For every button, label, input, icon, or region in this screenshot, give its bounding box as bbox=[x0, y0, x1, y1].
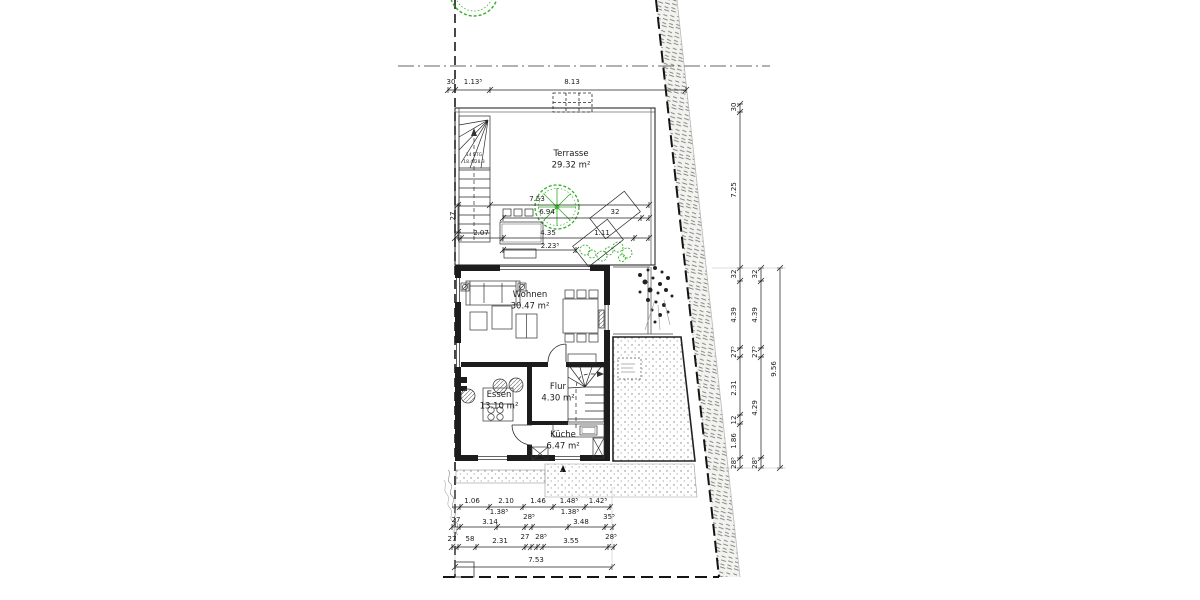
dimension-label: 9.56 bbox=[770, 361, 778, 377]
dimension-label: 27 bbox=[452, 516, 461, 524]
dimension-label: 27 bbox=[449, 212, 457, 221]
dimension-label: 4.39 bbox=[751, 307, 759, 323]
dimension-label: 1.38⁵ bbox=[490, 508, 509, 516]
room-area-wohnen: 30.47 m² bbox=[511, 302, 550, 312]
armchair bbox=[470, 312, 487, 330]
room-name-essen: Essen bbox=[487, 390, 512, 400]
table bbox=[500, 222, 543, 244]
stair-label: 14 STG bbox=[466, 152, 483, 158]
dimension-label: 7.53 bbox=[529, 195, 545, 203]
chair bbox=[577, 290, 586, 298]
dimension-label: 12 bbox=[730, 416, 738, 425]
floor-plan-drawing: 301.13⁵8.137.536.94322.074.351.112.23⁵27… bbox=[0, 0, 1200, 600]
dimension-label: 1.11 bbox=[594, 229, 610, 237]
dimension-label: 2.23⁵ bbox=[541, 242, 560, 250]
dining-table bbox=[563, 299, 598, 333]
shrub-planting bbox=[638, 266, 674, 330]
dimension-label: 4.29 bbox=[751, 400, 759, 416]
dimension-lines bbox=[445, 87, 786, 570]
dimension-label: 35⁵ bbox=[603, 513, 615, 521]
stove-burner bbox=[497, 414, 503, 420]
dimension-label: 30 bbox=[447, 78, 456, 86]
dimension-label: 27 bbox=[521, 533, 530, 541]
room-name-flur: Flur bbox=[550, 382, 567, 392]
stove-burner bbox=[488, 414, 494, 420]
dimension-label: 1.06 bbox=[464, 497, 480, 505]
shrub-icons bbox=[580, 242, 632, 262]
dimension-label: 30 bbox=[730, 103, 738, 112]
coffee-table bbox=[492, 306, 512, 329]
dimension-label: 27 bbox=[448, 535, 457, 543]
dimension-label: 27⁵ bbox=[751, 346, 759, 358]
door-wohnen bbox=[548, 344, 566, 362]
dimension-label: 3.48 bbox=[573, 518, 589, 526]
chair bbox=[565, 290, 574, 298]
terrace-furniture bbox=[500, 191, 640, 267]
tree-icon bbox=[450, 0, 498, 16]
radiator bbox=[599, 310, 604, 328]
entrance-door-opening bbox=[555, 457, 580, 460]
terrace bbox=[455, 93, 655, 267]
dimension-label: 7.53 bbox=[528, 556, 544, 564]
dimension-label: 1.42⁵ bbox=[589, 497, 608, 505]
skylight-grid bbox=[553, 93, 592, 112]
gravel-court bbox=[613, 337, 695, 461]
dimension-label: 1.48⁵ bbox=[560, 497, 579, 505]
stair-label: 18.4/28.3 bbox=[463, 159, 485, 165]
dimension-label: 32 bbox=[751, 270, 759, 279]
stool bbox=[514, 209, 522, 216]
chair bbox=[577, 334, 586, 342]
dimension-label: 28⁵ bbox=[605, 533, 617, 541]
dimension-label: 1.86 bbox=[730, 433, 738, 449]
stool bbox=[503, 209, 511, 216]
walkway-entrance bbox=[545, 464, 697, 497]
dimension-label: 6.94 bbox=[539, 208, 555, 216]
dimension-label: 58 bbox=[466, 535, 475, 543]
window-left-1 bbox=[457, 278, 460, 302]
room-name-küche: Küche bbox=[550, 430, 576, 440]
dimension-label: 28⁵ bbox=[730, 457, 738, 469]
room-area-flur: 4.30 m² bbox=[541, 394, 574, 404]
door-kueche bbox=[512, 425, 532, 445]
chair bbox=[565, 334, 574, 342]
stool bbox=[525, 209, 533, 216]
room-area-küche: 6.47 m² bbox=[546, 442, 579, 452]
dimension-label: 27⁵ bbox=[730, 346, 738, 358]
room-name-terrasse: Terrasse bbox=[552, 149, 588, 159]
window-bottom-1 bbox=[478, 457, 507, 460]
dimension-label: 2.07 bbox=[473, 229, 489, 237]
tree-icon bbox=[455, 0, 493, 11]
dimension-label: 7.25 bbox=[730, 182, 738, 198]
dimension-label: 8.13 bbox=[564, 78, 580, 86]
room-area-essen: 13.10 m² bbox=[480, 402, 519, 412]
table-top bbox=[502, 224, 541, 242]
dimension-label: 4.39 bbox=[730, 307, 738, 323]
sink-basin bbox=[582, 428, 595, 434]
dimension-label: 3.14 bbox=[482, 518, 498, 526]
utility-box bbox=[618, 358, 641, 379]
outdoor-areas bbox=[456, 266, 697, 497]
dimension-label: 1.38⁵ bbox=[561, 508, 580, 516]
dimension-label: 32 bbox=[730, 270, 738, 279]
dimension-label: 28⁵ bbox=[535, 533, 547, 541]
radiator bbox=[568, 354, 596, 363]
window-top bbox=[500, 267, 590, 270]
dimension-label: 2.10 bbox=[498, 497, 514, 505]
tree-icon bbox=[535, 185, 579, 229]
dimension-label: 1.13⁵ bbox=[464, 78, 483, 86]
room-area-terrasse: 29.32 m² bbox=[552, 161, 591, 171]
dimension-label: 2.31 bbox=[730, 380, 738, 396]
dimension-label: 3.55 bbox=[563, 537, 579, 545]
dimension-label: 32 bbox=[611, 208, 620, 216]
dimension-label: 28⁵ bbox=[523, 513, 535, 521]
floor-plan-canvas: 301.13⁵8.137.536.94322.074.351.112.23⁵27… bbox=[0, 0, 1200, 600]
window-right bbox=[605, 305, 608, 330]
room-name-wohnen: Wohnen bbox=[513, 290, 548, 300]
stair-direction-arrow bbox=[597, 371, 604, 377]
dimension-label: 4.35 bbox=[540, 229, 556, 237]
plant-pot bbox=[461, 389, 475, 403]
dimension-label: 28⁵ bbox=[751, 457, 759, 469]
exterior-stair bbox=[459, 116, 490, 242]
chair bbox=[589, 290, 598, 298]
walkway bbox=[456, 470, 545, 483]
chair bbox=[589, 334, 598, 342]
window-left-2 bbox=[457, 343, 460, 367]
lounger bbox=[573, 219, 624, 267]
dimension-label: 1.46 bbox=[530, 497, 546, 505]
dimension-label: 2.31 bbox=[492, 537, 508, 545]
